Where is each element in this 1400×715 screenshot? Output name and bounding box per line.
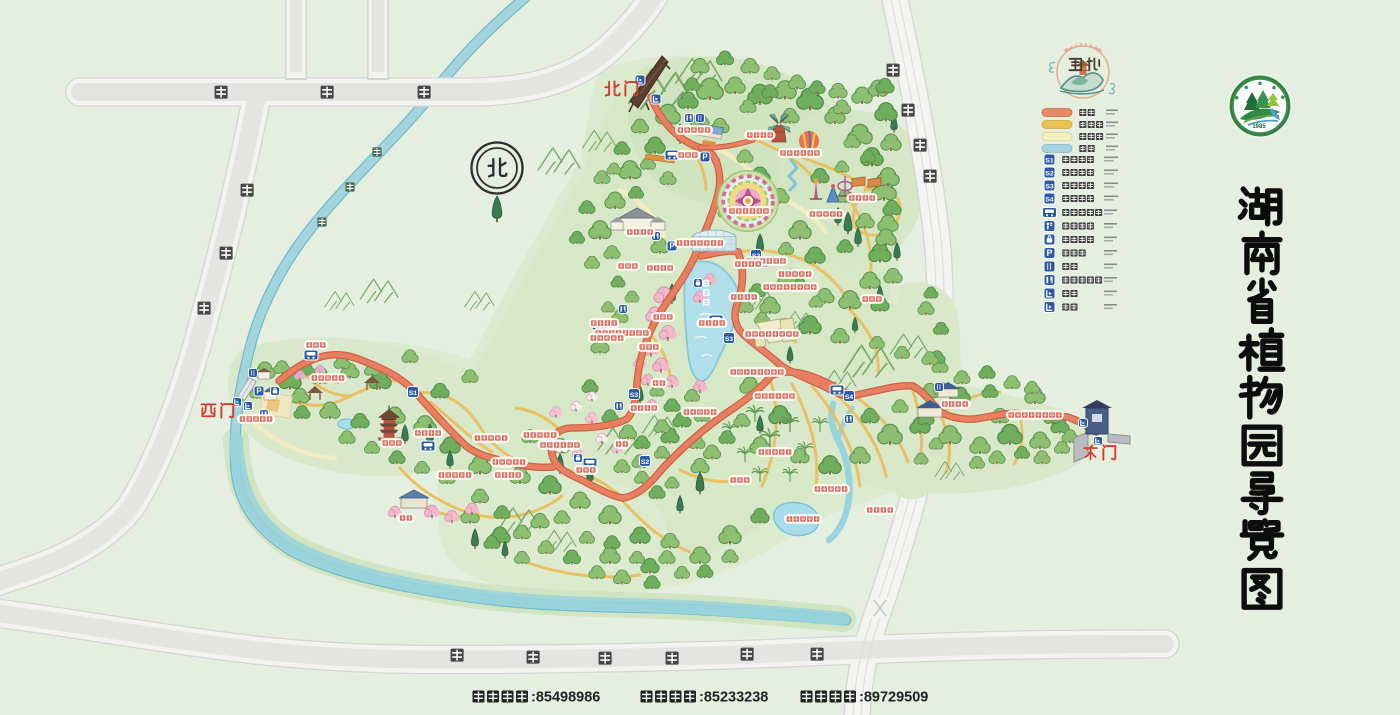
svg-text:S3: S3 xyxy=(725,336,734,343)
svg-text:1985: 1985 xyxy=(1252,124,1266,130)
svg-text:S1: S1 xyxy=(409,390,418,397)
svg-text:S2: S2 xyxy=(1045,170,1054,177)
svg-text:P: P xyxy=(702,152,708,161)
svg-text::85233238: :85233238 xyxy=(699,690,768,706)
svg-text:S3: S3 xyxy=(630,392,639,399)
svg-text:S1: S1 xyxy=(1045,157,1054,164)
svg-text::85498986: :85498986 xyxy=(531,690,600,706)
svg-text:S3: S3 xyxy=(1045,183,1054,190)
svg-text:P: P xyxy=(256,386,262,395)
svg-text:S2: S2 xyxy=(641,459,650,466)
svg-text:S4: S4 xyxy=(1045,196,1054,203)
svg-text:S4: S4 xyxy=(845,394,854,401)
svg-text:P: P xyxy=(1046,248,1052,258)
svg-text::89729509: :89729509 xyxy=(859,690,928,706)
